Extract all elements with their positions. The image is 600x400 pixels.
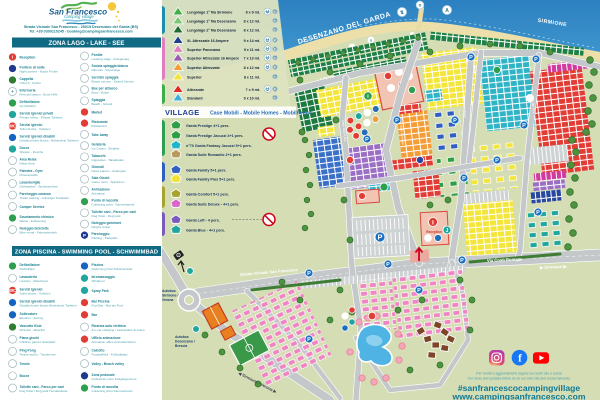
svg-text:Pool Bar - Bar am Pool: Pool Bar - Bar am Pool [92,304,124,308]
svg-text:Garda Family 5+1 pers.: Garda Family 5+1 pers. [186,168,226,172]
svg-text:Superior: Superior [187,76,202,80]
svg-text:Garda Suite Deluxe - 4+1 pers: Garda Suite Deluxe - 4+1 pers. [186,202,239,206]
svg-text:P: P [377,233,382,242]
svg-text:XL Attrezzate 16 Ampere: XL Attrezzate 16 Ampere [187,39,229,43]
svg-text:P: P [417,288,421,294]
svg-text:Game room - Spielraum: Game room - Spielraum [92,180,125,184]
svg-text:camping village: camping village [64,14,94,19]
svg-text:P: P [365,137,369,143]
svg-text:ZONA PISCINA - SWIMMING POOL -: ZONA PISCINA - SWIMMING POOL - SCHWIMMBA… [15,250,158,256]
svg-text:Cigarettes - Tabakladen: Cigarettes - Tabakladen [92,158,125,162]
svg-text:Fussballfeld - Fußballplatz: Fussballfeld - Fußballplatz [92,352,129,356]
svg-text:& e-car charging / Ladestation: & e-car charging / Ladestation E-Autos [92,328,146,332]
svg-text:P: P [307,271,311,277]
svg-text:P: P [307,337,311,343]
svg-text:Desenzano /: Desenzano / [175,340,195,344]
svg-text:9 x 14 mt.: 9 x 14 mt. [244,39,260,43]
svg-text:Garda Blue - 4+1 pers.: Garda Blue - 4+1 pers. [186,228,225,232]
svg-text:Beach - Strand: Beach - Strand [92,102,113,106]
svg-text:Superior Panorama: Superior Panorama [187,48,221,52]
svg-text:Toilet blocks - Toiletten: Toilet blocks - Toiletten [20,127,51,131]
svg-text:Trailer parking - Anhänger Par: Trailer parking - Anhänger Parkplatz [20,196,70,200]
svg-text:For news and updates follow us: For news and updates follow us on our we… [468,377,571,381]
svg-text:Garda Prestige 4+1 pers.: Garda Prestige 4+1 pers. [186,124,229,128]
svg-text:ZONA LAGO - LAKE - SEE: ZONA LAGO - LAKE - SEE [49,40,125,47]
svg-text:8 x 12 mt.: 8 x 12 mt. [244,29,260,33]
svg-text:Lungolago 1° fila Sirmione: Lungolago 1° fila Sirmione [187,11,232,15]
svg-text:P: P [522,123,526,129]
svg-text:Children games Spielplatz: Children games Spielplatz [20,340,56,344]
svg-text:Tennis tavolo - Tischtennis: Tennis tavolo - Tischtennis [20,352,57,356]
svg-text:Reception: Reception [426,230,441,234]
svg-text:P: P [453,118,457,124]
svg-text:WC: WC [9,288,17,293]
svg-text:i: i [432,219,434,226]
svg-text:VILLAGE: VILLAGE [165,108,200,117]
svg-text:Disabled toilet blocks Behinde: Disabled toilet blocks Behinderte Toilet… [20,304,77,308]
svg-text:Parking - Parkplatz: Parking - Parkplatz [92,236,119,240]
svg-text:J: J [446,228,449,234]
svg-text:Per novità e aggiornamenti se: Per novità e aggiornamenti seguici sui n… [476,372,561,376]
svg-text:Buoy - Bojen: Buoy - Bojen [92,91,110,95]
svg-text:Collecting point - Sammelpunkt: Collecting point - Sammelpunkt [92,203,135,207]
svg-text:Beach service - Strand Service: Beach service - Strand Service [92,79,135,83]
svg-text:Animation: Animation [92,191,106,195]
svg-text:i: i [12,55,13,60]
svg-text:7 x 9 mt.: 7 x 9 mt. [246,88,260,92]
svg-text:Defibrillator: Defibrillator [20,267,36,271]
svg-text:Autobus: Autobus [162,289,176,293]
svg-text:Fitnessstudio: Fitnessstudio [20,173,39,177]
svg-text:Attrezzate: Attrezzate [187,88,204,92]
svg-text:Collecting point Sammelpunkt: Collecting point Sammelpunkt [92,389,133,393]
svg-text:Garda Comfort 5+1 pers.: Garda Comfort 5+1 pers. [186,192,229,196]
svg-text:P: P [534,57,538,63]
svg-text:Tel. +39 0309110245 - booking@: Tel. +39 0309110245 - booking@campingsan… [29,30,133,34]
svg-text:Volley - Beach volley: Volley - Beach volley [92,362,125,366]
svg-text:First aid station - Erste Hilf: First aid station - Erste Hilfe [20,93,58,97]
svg-text:P: P [469,55,473,61]
svg-text:Garda Prestige Jacuzzi 4+1 pe: Garda Prestige Jacuzzi 4+1 pers. [186,134,244,138]
svg-text:8 x 11 mt.: 8 x 11 mt. [244,76,260,80]
svg-text:Superior Attrezzate: Superior Attrezzate [187,66,220,70]
svg-text:Whirlpool: Whirlpool [92,279,105,283]
svg-text:News papers - Zeitungen: News papers - Zeitungen [92,169,127,173]
svg-text:P: P [386,262,390,268]
svg-text:Sirmione /: Sirmione / [162,294,178,298]
svg-text:Pedestrian zone Fußgängerzone: Pedestrian zone Fußgängerzone [92,377,137,381]
svg-text:f: f [518,353,522,365]
svg-text:Dog Toilet / Dog park Hundetoi: Dog Toilet / Dog park Hundetoilette [20,389,68,393]
svg-text:P: P [83,233,86,238]
svg-text:P: P [495,158,499,164]
svg-text:Dinghy rental: Dinghy rental [92,225,111,229]
svg-text:De fibrillator: De fibrillator [20,104,37,108]
svg-text:Miniclub - Miniclub: Miniclub - Miniclub [20,328,46,332]
svg-text:Camper Service: Camper Service [20,205,45,209]
svg-text:Riponas - Féponaige: Riponas - Féponaige [92,68,121,72]
svg-text:n°70 Garda Fantasy Jacuzzi 5+1: n°70 Garda Fantasy Jacuzzi 5+1 pers. [186,144,252,148]
svg-text:Laundry - Wäscherei: Laundry - Wäscherei [20,279,49,283]
svg-text:www.campingsanfrancesco.com: www.campingsanfrancesco.com [452,392,586,400]
svg-text:Night porters - Nacht Portier: Night porters - Nacht Portier [20,70,59,74]
svg-text:Bike rental - Fahrradverleih: Bike rental - Fahrradverleih [20,231,58,235]
svg-text:Landing stage - Anlegesteg: Landing stage - Anlegesteg [92,57,130,61]
svg-text:Shower - Dusche: Shower - Dusche [20,150,44,154]
svg-text:Garda Family Plus 5+1 pers.: Garda Family Plus 5+1 pers. [186,177,235,181]
svg-text:Standard: Standard [187,97,203,101]
svg-text:Waste - Entleerung: Waste - Entleerung [20,219,47,223]
svg-text:Brescia: Brescia [175,344,187,348]
svg-text:Spray Park: Spray Park [92,289,109,293]
svg-text:Case Mobili - Mobile Homes - M: Case Mobili - Mobile Homes - Mobilheime [210,111,312,117]
svg-text:Animation office Animationsbür: Animation office Animationsbüro [92,340,136,344]
svg-text:9 x 11 mt.: 9 x 11 mt. [244,48,260,52]
svg-text:Elevator - Aufzug: Elevator - Aufzug [20,316,44,320]
svg-text:8 x 9 mt.: 8 x 9 mt. [246,11,260,15]
svg-text:P: P [395,118,399,124]
svg-text:Superior Attrezzate 16 Ampere: Superior Attrezzate 16 Ampere [187,57,239,61]
svg-text:Lungolago 1° fila Desenzano: Lungolago 1° fila Desenzano [187,20,237,24]
svg-text:Verona: Verona [162,298,173,302]
svg-text:8 x 12 mt.: 8 x 12 mt. [244,20,260,24]
svg-text:P: P [462,176,466,182]
svg-text:A: A [445,8,449,14]
svg-text:Reception: Reception [20,55,36,59]
svg-text:Tennis: Tennis [20,362,31,366]
svg-text:Swimming Pool Schwimmbad: Swimming Pool Schwimmbad [92,267,133,271]
svg-text:Toilet blocks - Toiletten: Toilet blocks - Toiletten [20,291,51,295]
svg-text:Autobus: Autobus [175,335,189,339]
svg-text:Dog Toilet - Dog park: Dog Toilet - Dog park [92,214,121,218]
svg-text:Relax Area: Relax Area [20,162,35,166]
svg-text:Bar: Bar [92,313,98,317]
svg-text:Restaurant: Restaurant [92,124,107,128]
svg-text:Garda Loft - 4 pers.: Garda Loft - 4 pers. [186,218,220,222]
svg-text:9 x 10 mt.: 9 x 10 mt. [244,97,260,101]
svg-text:+: + [11,89,14,94]
svg-text:Disabled toilet blocks - Behin: Disabled toilet blocks - Behinderte Toil… [20,139,79,143]
svg-text:o: o [419,3,422,8]
svg-text:Bocce: Bocce [20,374,30,378]
svg-text:Church - Kirche: Church - Kirche [20,81,42,85]
svg-text:Ice Cream - Eisdiele: Ice Cream - Eisdiele [92,147,120,151]
svg-text:P: P [536,210,540,216]
svg-text:Take Away: Take Away [92,133,109,137]
svg-text:Private toilets - Private Toil: Private toilets - Private Toiletten [20,116,64,120]
svg-text:Garda Suite Romantic 2+1 pers.: Garda Suite Romantic 2+1 pers. [186,153,242,157]
svg-text:Dishwasher - Spülmaschine: Dishwasher - Spülmaschine [20,185,59,189]
svg-text:7 x 13 mt.: 7 x 13 mt. [244,57,260,61]
svg-text:WC: WC [9,124,17,129]
svg-text:Market: Market [92,110,104,114]
svg-text:Lungolago 2° fila Desenzano: Lungolago 2° fila Desenzano [187,29,237,33]
svg-text:8 x 12 mt.: 8 x 12 mt. [244,66,260,70]
svg-text:P: P [460,258,464,264]
svg-text:Strada Vicinale San Francesco: Strada Vicinale San Francesco - 25015 De… [24,25,139,29]
